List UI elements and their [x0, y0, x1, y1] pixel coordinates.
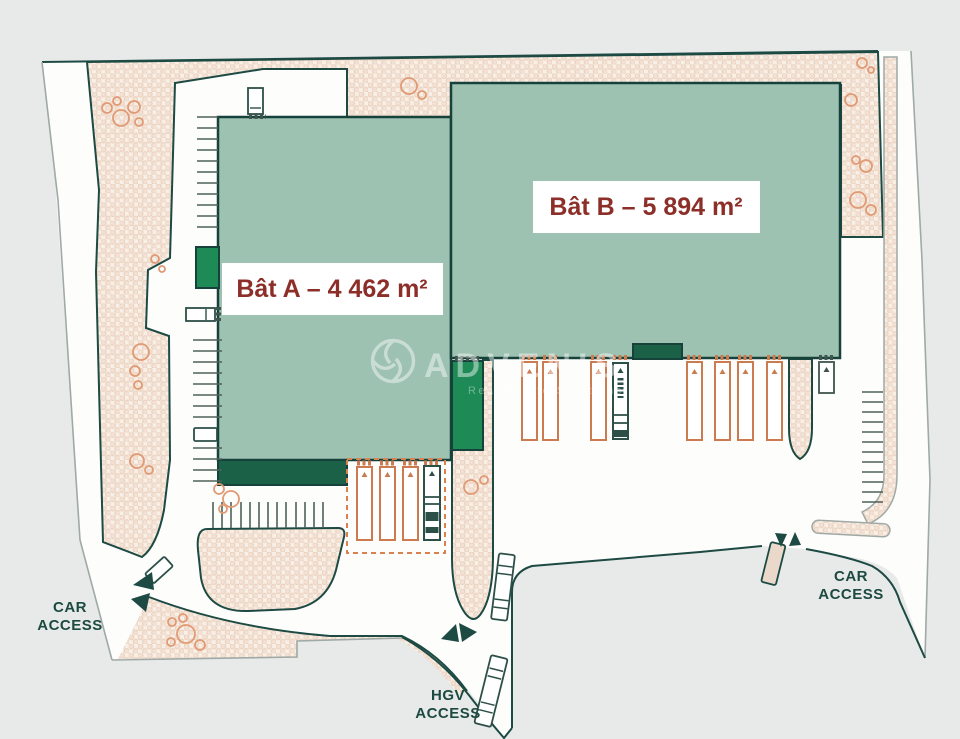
- watermark-tagline: Real Estate Solutions: [468, 385, 624, 397]
- hgv-access-label-line2: ACCESS: [415, 705, 481, 722]
- building-b-dock-shelter: [633, 344, 682, 359]
- car-access-left-label-line1: CAR: [53, 599, 87, 616]
- truck-bay: [403, 467, 418, 540]
- truck-icon-west: [186, 308, 215, 321]
- landscape-teardrop-right: [789, 359, 812, 459]
- car-access-right-label-line2: ACCESS: [818, 586, 884, 603]
- building-b-label: Bât B – 5 894 m²: [549, 193, 742, 221]
- dock-block-west: [196, 247, 219, 288]
- building-a-label: Bât A – 4 462 m²: [236, 275, 427, 303]
- truck-icon-top: [248, 88, 263, 114]
- car-access-right-label-line1: CAR: [834, 568, 868, 585]
- hgv-bays-building-a: [347, 459, 445, 553]
- building-a-dock-strip: [218, 460, 347, 485]
- site-plan: ADVENIS Real Estate Solutions Bât A – 4 …: [0, 0, 960, 739]
- car-icon-parked: [194, 428, 217, 441]
- waiting-truck-icon: [819, 362, 834, 393]
- site-plan-canvas: ADVENIS Real Estate Solutions Bât A – 4 …: [0, 0, 960, 739]
- truck-bay: [380, 467, 395, 540]
- car-access-left-label-line2: ACCESS: [37, 617, 103, 634]
- truck-bay: [357, 467, 372, 540]
- hgv-access-label-line1: HGV: [431, 687, 465, 704]
- watermark-brand: ADVENIS: [424, 347, 624, 385]
- parked-truck-icon: [424, 466, 440, 540]
